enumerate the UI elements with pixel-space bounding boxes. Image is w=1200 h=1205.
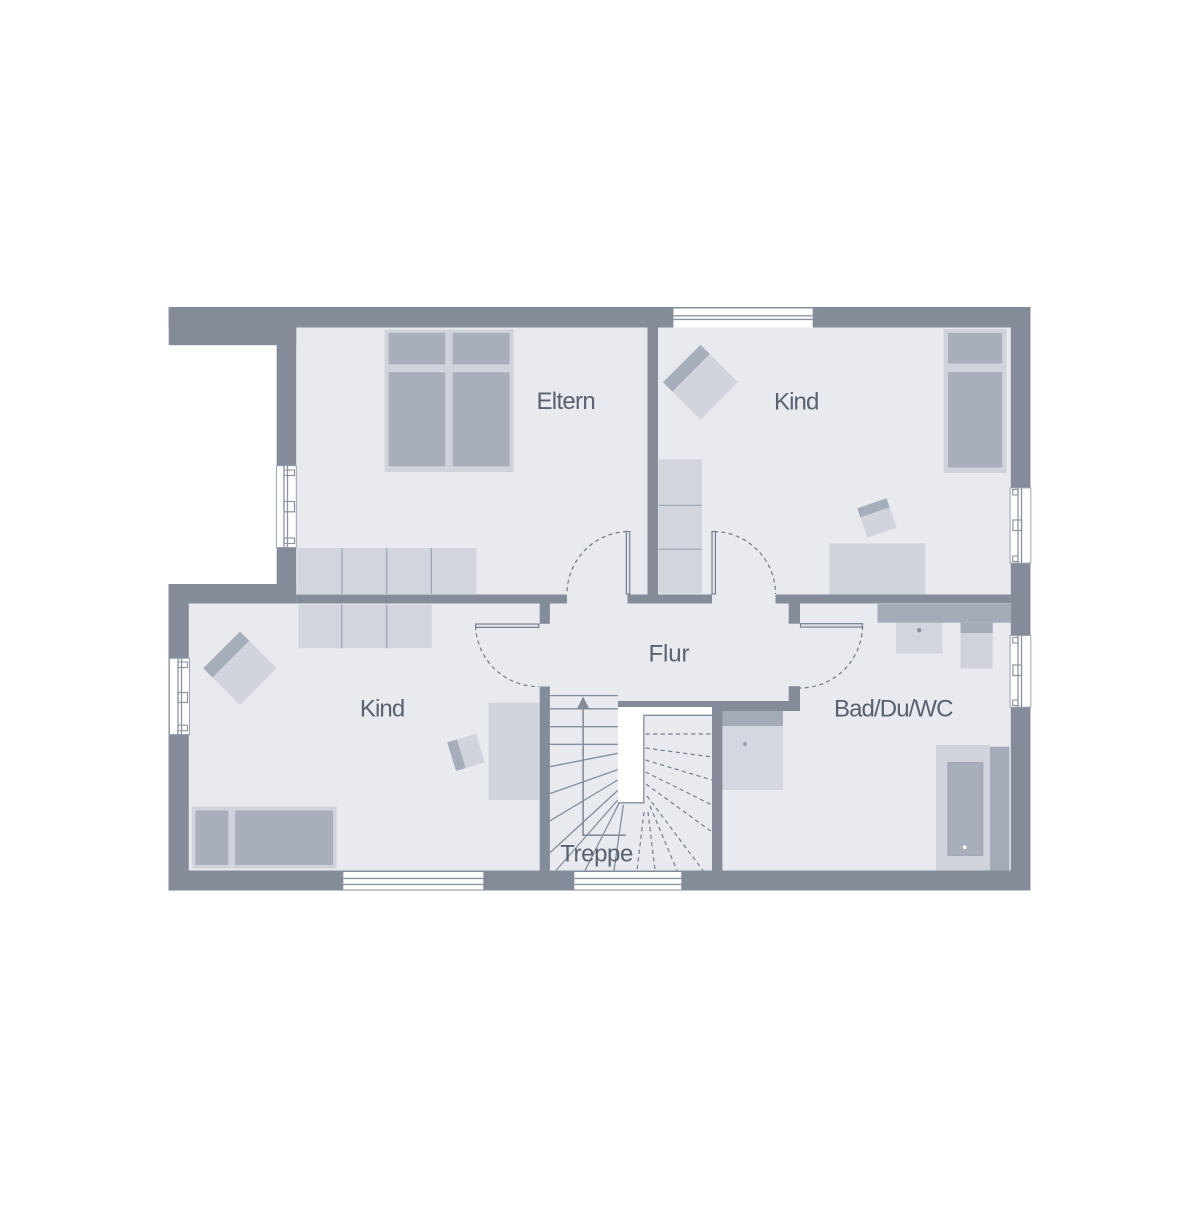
svg-text:Kind: Kind	[774, 389, 818, 416]
svg-text:Flur: Flur	[649, 640, 690, 667]
svg-text:Eltern: Eltern	[537, 388, 596, 415]
svg-text:Treppe: Treppe	[560, 840, 633, 867]
svg-text:Kind: Kind	[360, 696, 404, 723]
svg-text:Bad/Du/WC: Bad/Du/WC	[834, 695, 953, 722]
